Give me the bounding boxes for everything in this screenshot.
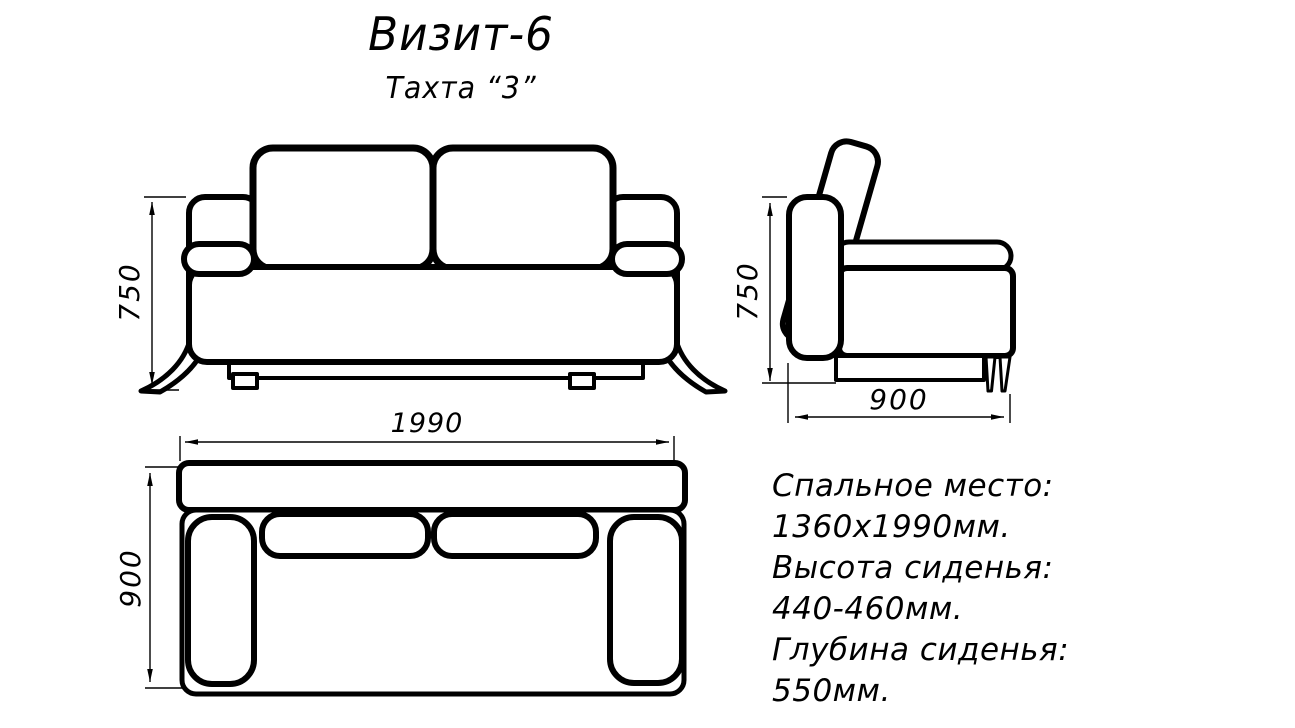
side-base-frame [836, 356, 984, 380]
model-title: Визит-6 [319, 8, 604, 60]
front-foot-left [233, 374, 257, 388]
spec-sleeping-place-value: 1360х1990мм. [772, 507, 1192, 548]
top-depth-label: 900 [114, 548, 147, 607]
front-back-cushion-left [253, 148, 433, 269]
side-view [779, 138, 1013, 391]
top-back-cushion-left [262, 514, 428, 556]
top-width-label: 1990 [391, 408, 464, 439]
side-seat-box [839, 268, 1013, 356]
drawing-page: 750 750 900 1990 900 Визит-6 Тахта “3 [0, 0, 1295, 728]
top-back-cushion-right [434, 514, 596, 556]
spec-seat-depth-label: Глубина сиденья: [772, 630, 1192, 671]
front-height-label: 750 [113, 262, 146, 321]
specifications-block: Спальное место: 1360х1990мм. Высота сиде… [772, 466, 1192, 712]
model-subtitle: Тахта “3” [319, 72, 604, 106]
spec-sleeping-place-label: Спальное место: [772, 466, 1192, 507]
top-armrest-left [188, 517, 254, 684]
front-foot-right [570, 374, 594, 388]
spec-seat-height-label: Высота сиденья: [772, 548, 1192, 589]
side-leg-back [1000, 357, 1010, 391]
front-armrest-pad-right [612, 244, 682, 274]
side-leg-front [986, 357, 995, 391]
side-depth-label: 900 [869, 383, 928, 416]
side-armrest [789, 197, 841, 358]
top-armrest-right [610, 517, 682, 683]
front-view [141, 148, 725, 392]
side-height-label: 750 [731, 261, 764, 320]
front-seat [189, 267, 677, 362]
front-back-cushion-right [433, 148, 613, 269]
top-view [179, 463, 685, 694]
front-armrest-pad-left [184, 244, 254, 274]
spec-seat-depth-value: 550мм. [772, 671, 1192, 712]
title-block: Визит-6 Тахта “3” [319, 8, 604, 106]
spec-seat-height-value: 440-460мм. [772, 589, 1192, 630]
top-backrest-strip [179, 463, 685, 510]
